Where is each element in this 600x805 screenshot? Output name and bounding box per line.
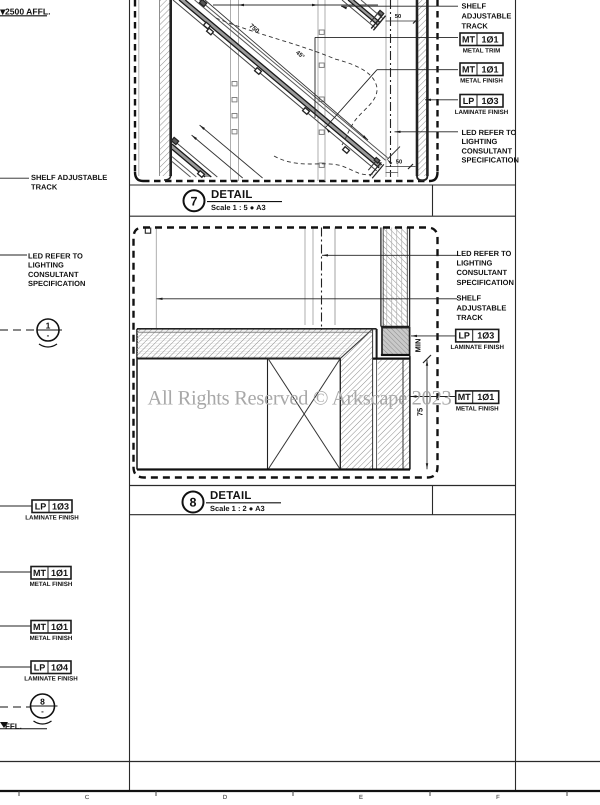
svg-text:ADJUSTABLE: ADJUSTABLE	[457, 303, 507, 312]
svg-text:LAMINATE FINISH: LAMINATE FINISH	[25, 515, 79, 522]
svg-text:1Ø1: 1Ø1	[481, 34, 498, 44]
svg-text:LIGHTING: LIGHTING	[457, 259, 493, 268]
svg-text:E: E	[359, 794, 363, 800]
svg-text:LIGHTING: LIGHTING	[462, 137, 498, 146]
svg-text:7: 7	[191, 194, 198, 208]
svg-text:D: D	[223, 794, 228, 800]
svg-text:LP: LP	[458, 331, 470, 341]
svg-text:50: 50	[395, 13, 401, 20]
svg-text:8: 8	[40, 697, 45, 707]
svg-text:LP: LP	[34, 662, 46, 672]
svg-text:ADJUSTABLE: ADJUSTABLE	[462, 12, 512, 21]
svg-text:METAL TRIM: METAL TRIM	[463, 48, 501, 55]
svg-text:FFL.: FFL.	[5, 722, 22, 731]
svg-text:1Ø3: 1Ø3	[52, 501, 69, 511]
svg-text:LP: LP	[463, 96, 475, 106]
svg-text:DETAIL: DETAIL	[210, 490, 251, 502]
svg-text:CONSULTANT: CONSULTANT	[28, 270, 79, 279]
svg-text:LED REFER TO: LED REFER TO	[28, 252, 83, 261]
svg-text:8: 8	[190, 496, 197, 510]
svg-text:CONSULTANT: CONSULTANT	[462, 146, 513, 155]
svg-text:Scale 1 : 2 ● A3: Scale 1 : 2 ● A3	[210, 504, 265, 513]
svg-text:MT: MT	[462, 64, 475, 74]
svg-text:MIN: MIN	[414, 339, 423, 353]
svg-text:1Ø1: 1Ø1	[51, 622, 68, 632]
svg-text:CONSULTANT: CONSULTANT	[457, 268, 508, 277]
svg-text:Scale 1 : 5 ● A3: Scale 1 : 5 ● A3	[211, 203, 266, 212]
svg-text:LAMINATE FINISH: LAMINATE FINISH	[24, 676, 78, 683]
svg-text:MT: MT	[33, 622, 46, 632]
svg-text:SHELF: SHELF	[457, 294, 482, 303]
svg-text:1Ø3: 1Ø3	[481, 96, 498, 106]
svg-text:TRACK: TRACK	[457, 313, 484, 322]
svg-text:METAL FINISH: METAL FINISH	[30, 635, 73, 642]
svg-text:LIGHTING: LIGHTING	[28, 261, 64, 270]
svg-text:SPECIFICATION: SPECIFICATION	[457, 278, 514, 287]
svg-text:50: 50	[396, 158, 402, 165]
svg-text:1Ø4: 1Ø4	[51, 662, 68, 672]
svg-text:LED REFER TO: LED REFER TO	[462, 128, 517, 137]
svg-text:LP: LP	[35, 501, 47, 511]
svg-text:LAMINATE FINISH: LAMINATE FINISH	[455, 109, 509, 116]
svg-text:MT: MT	[33, 568, 46, 578]
svg-text:METAL FINISH: METAL FINISH	[460, 78, 503, 85]
svg-text:All Rights Reserved © Arkscape: All Rights Reserved © Arkscape 2023	[148, 388, 452, 410]
svg-text:METAL FINISH: METAL FINISH	[456, 406, 499, 413]
svg-text:TRACK: TRACK	[462, 22, 489, 31]
svg-text:1Ø1: 1Ø1	[481, 64, 498, 74]
svg-text:MT: MT	[458, 392, 471, 402]
svg-text:SPECIFICATION: SPECIFICATION	[28, 279, 85, 288]
svg-text:1Ø1: 1Ø1	[477, 392, 494, 402]
svg-text:F: F	[496, 794, 500, 800]
svg-text:1Ø3: 1Ø3	[477, 331, 494, 341]
svg-text:MT: MT	[462, 34, 475, 44]
svg-text:1Ø1: 1Ø1	[51, 568, 68, 578]
svg-text:LED REFER TO: LED REFER TO	[457, 249, 512, 258]
svg-text:LAMINATE FINISH: LAMINATE FINISH	[450, 344, 504, 351]
svg-text:DETAIL: DETAIL	[211, 189, 252, 201]
svg-text:C: C	[85, 794, 90, 800]
svg-text:SHELF: SHELF	[462, 2, 487, 11]
svg-text:SHELF ADJUSTABLE: SHELF ADJUSTABLE	[31, 173, 107, 182]
svg-text:METAL FINISH: METAL FINISH	[30, 581, 73, 588]
svg-text:-: -	[47, 331, 50, 340]
svg-text:SPECIFICATION: SPECIFICATION	[462, 156, 519, 165]
svg-text:-: -	[41, 707, 44, 716]
svg-text:2500 AFFL.: 2500 AFFL.	[5, 6, 51, 16]
svg-text:1: 1	[46, 321, 51, 331]
svg-text:TRACK: TRACK	[31, 182, 58, 191]
